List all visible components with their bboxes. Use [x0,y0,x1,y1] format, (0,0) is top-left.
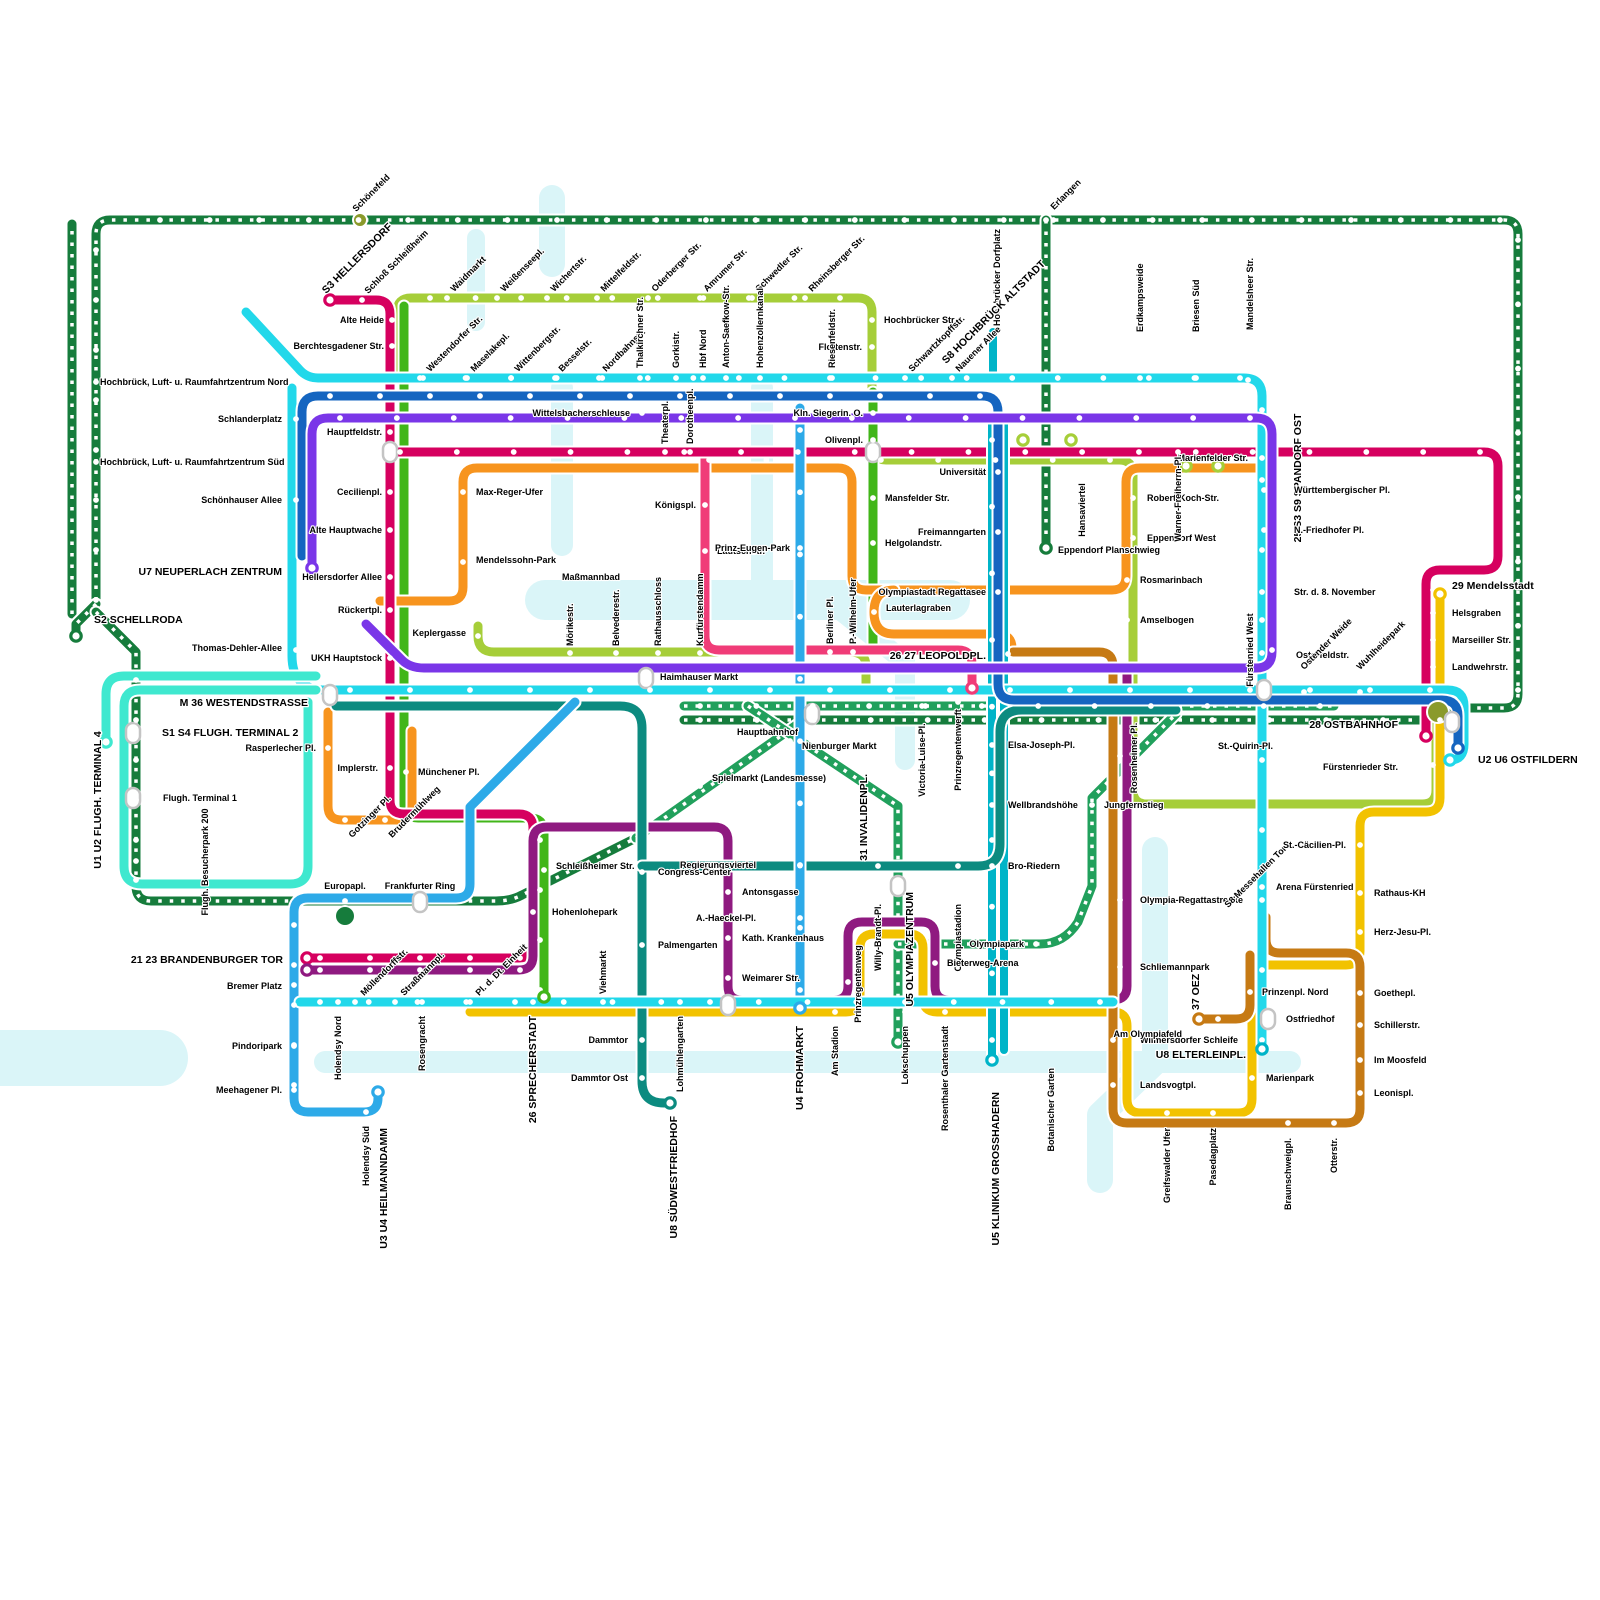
station-dot[interactable] [387,607,393,613]
station-dot[interactable] [845,979,851,985]
station-dot[interactable] [767,687,773,693]
station-dot[interactable] [1259,650,1265,656]
station-dot[interactable] [133,837,139,843]
station-dot[interactable] [1210,1110,1216,1116]
station-dot[interactable] [797,800,803,806]
station-dot[interactable] [797,614,803,620]
station-dot[interactable] [1515,559,1521,565]
station-dot[interactable] [850,649,856,655]
station-dot[interactable] [639,410,645,416]
station-dot[interactable] [1367,687,1373,693]
station-dot[interactable] [477,393,483,399]
station-dot[interactable] [681,449,687,455]
station-dot[interactable] [706,457,712,463]
station-dot[interactable] [417,898,423,904]
station-dot[interactable] [995,469,1001,475]
station-dot[interactable] [306,217,312,223]
station-dot[interactable] [1022,449,1028,455]
station-dot[interactable] [1515,301,1521,307]
station-dot[interactable] [610,999,616,1005]
station-dot[interactable] [508,375,514,381]
station-dot[interactable] [93,297,99,303]
station-dot[interactable] [207,217,213,223]
station-dot[interactable] [1009,375,1015,381]
station-dot[interactable] [1357,1057,1363,1063]
station-dot[interactable] [394,415,400,421]
terminal-station[interactable] [987,1055,997,1065]
station-dot[interactable] [942,1009,948,1015]
station-dot[interactable] [1204,703,1210,709]
station-dot[interactable] [989,704,995,710]
terminal-station[interactable] [373,1087,383,1097]
station-dot[interactable] [932,960,938,966]
station-dot[interactable] [382,817,388,823]
terminal-station[interactable] [795,1003,805,1013]
station-dot[interactable] [387,655,393,661]
station-dot[interactable] [738,449,744,455]
station-dot[interactable] [1259,617,1265,623]
station-dot[interactable] [877,393,883,399]
station-dot[interactable] [662,449,668,455]
station-dot[interactable] [702,502,708,508]
station-dot[interactable] [1261,487,1267,493]
station-dot[interactable] [1215,1016,1221,1022]
station-dot[interactable] [870,495,876,501]
station-dot[interactable] [133,757,139,763]
station-dot[interactable] [1033,941,1039,947]
terminal-station[interactable] [967,683,977,693]
station-dot[interactable] [1269,647,1275,653]
station-dot[interactable] [454,449,460,455]
station-dot[interactable] [639,869,645,875]
station-dot[interactable] [352,999,358,1005]
station-dot[interactable] [918,375,924,381]
terminal-station[interactable] [302,953,312,963]
station-dot[interactable] [1430,610,1436,616]
station-dot[interactable] [1245,377,1251,383]
station-dot[interactable] [1079,449,1085,455]
station-dot[interactable] [1124,577,1130,583]
station-dot[interactable] [754,717,760,723]
station-dot[interactable] [1357,890,1363,896]
station-dot[interactable] [1110,1082,1116,1088]
station-dot[interactable] [291,1082,297,1088]
station-dot[interactable] [527,393,533,399]
station-dot[interactable] [93,347,99,353]
station-dot[interactable] [697,783,703,789]
interchange-station[interactable] [383,442,397,462]
station-dot[interactable] [505,217,511,223]
station-dot[interactable] [1259,897,1265,903]
station-dot[interactable] [1124,617,1130,623]
station-dot[interactable] [291,1043,297,1049]
station-dot[interactable] [1001,217,1007,223]
station-dot[interactable] [645,295,651,301]
station-dot[interactable] [1398,217,1404,223]
station-dot[interactable] [725,935,731,941]
station-dot[interactable] [989,837,995,843]
station-dot[interactable] [530,999,536,1005]
station-dot[interactable] [1447,217,1453,223]
station-dot[interactable] [787,738,793,744]
station-dot[interactable] [1209,717,1215,723]
station-dot[interactable] [1193,375,1199,381]
interchange-station[interactable] [891,876,905,896]
station-dot[interactable] [366,999,372,1005]
station-dot[interactable] [1515,623,1521,629]
station-dot[interactable] [1050,217,1056,223]
station-dot[interactable] [363,1109,369,1115]
station-dot[interactable] [157,217,163,223]
terminal-station[interactable] [1257,1044,1267,1054]
station-dot[interactable] [387,489,393,495]
u-turquoise-loop[interactable] [124,690,316,884]
station-dot[interactable] [467,955,473,961]
station-dot[interactable] [444,295,450,301]
terminal-station[interactable] [302,965,312,975]
terminal-station[interactable] [1041,543,1051,553]
station-dot[interactable] [870,540,876,546]
station-dot[interactable] [829,375,835,381]
station-dot[interactable] [1096,717,1102,723]
station-dot[interactable] [723,375,729,381]
station-dot[interactable] [700,375,706,381]
station-dot[interactable] [1249,1075,1255,1081]
station-dot[interactable] [1079,465,1085,471]
station-dot[interactable] [325,745,331,751]
station-dot[interactable] [1130,495,1136,501]
station-dot[interactable] [451,415,457,421]
station-dot[interactable] [291,962,297,968]
station-dot[interactable] [609,295,615,301]
station-dot[interactable] [1515,430,1521,436]
station-dot[interactable] [1299,217,1305,223]
station-dot[interactable] [1259,407,1265,413]
station-dot[interactable] [627,393,633,399]
station-dot[interactable] [1127,687,1133,693]
station-dot[interactable] [647,687,653,693]
station-dot[interactable] [677,393,683,399]
station-dot[interactable] [1363,449,1369,455]
station-dot[interactable] [1130,535,1136,541]
station-dot[interactable] [1055,375,1061,381]
station-dot[interactable] [1039,717,1045,723]
station-dot[interactable] [93,247,99,253]
station-dot[interactable] [133,877,139,883]
station-dot[interactable] [875,863,881,869]
station-dot[interactable] [687,449,693,455]
station-dot[interactable] [1089,802,1095,808]
station-dot[interactable] [347,687,353,693]
station-dot[interactable] [604,217,610,223]
station-dot[interactable] [763,457,769,463]
station-dot[interactable] [832,1009,838,1015]
station-dot[interactable] [1259,455,1265,461]
station-dot[interactable] [567,650,573,656]
station-dot[interactable] [1259,884,1265,890]
station-dot[interactable] [467,967,473,973]
station-dot[interactable] [293,647,299,653]
station-dot[interactable] [342,817,348,823]
station-dot[interactable] [1357,929,1363,935]
station-dot[interactable] [1515,366,1521,372]
station-dot[interactable] [624,449,630,455]
station-dot[interactable] [677,999,683,1005]
station-dot[interactable] [989,770,995,776]
station-dot[interactable] [1259,827,1265,833]
station-dot[interactable] [389,317,395,323]
station-dot[interactable] [873,375,879,381]
station-dot[interactable] [906,415,912,421]
station-dot[interactable] [703,217,709,223]
station-dot[interactable] [1430,762,1436,768]
station-dot[interactable] [727,393,733,399]
station-dot[interactable] [955,863,961,869]
station-dot[interactable] [1247,989,1253,995]
station-dot[interactable] [655,650,661,656]
station-dot[interactable] [600,999,606,1005]
station-dot[interactable] [473,295,479,301]
station-dot[interactable] [802,295,808,301]
station-dot[interactable] [1259,547,1265,553]
station-dot[interactable] [464,375,470,381]
station-dot[interactable] [1249,217,1255,223]
station-dot[interactable] [795,449,801,455]
station-dot[interactable] [1317,703,1323,709]
station-dot[interactable] [1187,687,1193,693]
station-dot[interactable] [293,416,299,422]
station-dot[interactable] [802,217,808,223]
station-dot[interactable] [869,317,875,323]
station-dot[interactable] [797,862,803,868]
station-dot[interactable] [909,449,915,455]
station-dot[interactable] [291,1002,297,1008]
station-dot[interactable] [460,559,466,565]
station-dot[interactable] [291,922,297,928]
station-dot[interactable] [467,687,473,693]
station-dot[interactable] [317,999,323,1005]
station-dot[interactable] [852,449,858,455]
station-dot[interactable] [725,975,731,981]
station-dot[interactable] [1136,449,1142,455]
station-dot[interactable] [552,375,558,381]
station-dot[interactable] [356,217,362,223]
station-dot[interactable] [93,459,99,465]
station-dot[interactable] [821,457,827,463]
station-dot[interactable] [1247,687,1253,693]
station-dot[interactable] [1259,477,1265,483]
station-dot[interactable] [367,955,373,961]
station-dot[interactable] [1515,687,1521,693]
station-dot[interactable] [1000,999,1006,1005]
station-dot[interactable] [1048,999,1054,1005]
station-dot[interactable] [1301,689,1307,695]
station-dot[interactable] [870,437,876,443]
terminal-station[interactable] [1194,1014,1204,1024]
station-dot[interactable] [639,942,645,948]
station-dot[interactable] [1237,375,1243,381]
station-dot[interactable] [133,677,139,683]
station-dot[interactable] [1107,457,1113,463]
station-dot[interactable] [989,504,995,510]
station-dot[interactable] [690,375,696,381]
station-dot[interactable] [475,633,481,639]
station-dot[interactable] [420,375,426,381]
station-dot[interactable] [1259,757,1265,763]
station-dot[interactable] [1515,494,1521,500]
station-dot[interactable] [810,703,816,709]
station-dot[interactable] [1043,217,1049,223]
station-dot[interactable] [797,427,803,433]
station-dot[interactable] [1092,703,1098,709]
station-dot[interactable] [1348,217,1354,223]
terminal-station[interactable] [1445,755,1455,765]
station-dot[interactable] [291,1087,297,1093]
station-dot[interactable] [964,375,970,381]
station-dot[interactable] [1050,457,1056,463]
station-dot[interactable] [869,344,875,350]
station-dot[interactable] [989,570,995,576]
station-dot[interactable] [417,955,423,961]
station-dot[interactable] [508,415,514,421]
station-dot[interactable] [902,1009,908,1015]
station-dot[interactable] [1437,717,1443,723]
station-dot[interactable] [827,649,833,655]
station-dot[interactable] [989,637,995,643]
station-dot[interactable] [982,717,988,723]
station-dot[interactable] [577,393,583,399]
station-dot[interactable] [554,217,560,223]
station-dot[interactable] [93,379,99,385]
terminal-station[interactable] [1435,589,1445,599]
interchange-station[interactable] [639,668,653,688]
station-dot[interactable] [902,375,908,381]
station-dot[interactable] [989,437,995,443]
station-dot[interactable] [397,449,403,455]
station-dot[interactable] [935,457,941,463]
station-dot[interactable] [655,295,661,301]
station-dot[interactable] [1259,967,1265,973]
station-dot[interactable] [405,217,411,223]
station-dot[interactable] [1133,415,1139,421]
station-dot[interactable] [564,295,570,301]
station-dot[interactable] [527,687,533,693]
station-dot[interactable] [1190,415,1196,421]
station-dot[interactable] [1430,664,1436,670]
station-dot[interactable] [1202,743,1208,749]
station-dot[interactable] [1307,687,1313,693]
station-dot[interactable] [951,999,957,1005]
station-dot[interactable] [1117,753,1123,759]
station-dot[interactable] [753,217,759,223]
station-dot[interactable] [534,457,540,463]
station-dot[interactable] [1427,687,1433,693]
station-dot[interactable] [427,295,433,301]
station-dot[interactable] [989,742,995,748]
station-dot[interactable] [1097,999,1103,1005]
station-dot[interactable] [753,703,759,709]
station-dot[interactable] [870,410,876,416]
station-dot[interactable] [1067,687,1073,693]
station-dot[interactable] [327,393,333,399]
station-dot[interactable] [697,295,703,301]
station-dot[interactable] [702,548,708,554]
station-dot[interactable] [902,217,908,223]
station-dot[interactable] [697,650,703,656]
station-dot[interactable] [1357,1022,1363,1028]
station-dot[interactable] [1285,1120,1291,1126]
station-dot[interactable] [797,676,803,682]
station-dot[interactable] [387,527,393,533]
station-dot[interactable] [995,589,1001,595]
station-dot[interactable] [477,457,483,463]
station-dot[interactable] [467,999,473,1005]
station-dot[interactable] [93,597,99,603]
station-dot[interactable] [342,898,348,904]
terminal-station[interactable] [1018,435,1028,445]
station-dot[interactable] [1307,449,1313,455]
station-dot[interactable] [1199,217,1205,223]
station-dot[interactable] [1076,415,1082,421]
station-dot[interactable] [1150,217,1156,223]
interchange-station[interactable] [721,995,735,1015]
station-dot[interactable] [868,717,874,723]
station-dot[interactable] [955,699,961,705]
station-dot[interactable] [827,393,833,399]
station-dot[interactable] [587,687,593,693]
station-dot[interactable] [927,393,933,399]
station-dot[interactable] [757,375,763,381]
station-dot[interactable] [639,574,645,580]
station-dot[interactable] [792,295,798,301]
station-dot[interactable] [866,703,872,709]
station-dot[interactable] [797,489,803,495]
station-dot[interactable] [735,415,741,421]
interchange-station[interactable] [323,685,337,705]
station-dot[interactable] [596,375,602,381]
station-dot[interactable] [966,449,972,455]
station-dot[interactable] [1259,1037,1265,1043]
station-dot[interactable] [1164,1110,1170,1116]
station-dot[interactable] [797,915,803,921]
station-dot[interactable] [392,999,398,1005]
station-dot[interactable] [645,375,651,381]
station-dot[interactable] [925,717,931,723]
station-dot[interactable] [530,909,536,915]
station-dot[interactable] [989,1037,995,1043]
station-dot[interactable] [707,999,713,1005]
s-invaliden[interactable] [748,706,898,1042]
station-dot[interactable] [637,375,643,381]
station-dot[interactable] [797,925,803,931]
station-dot[interactable] [977,393,983,399]
station-dot[interactable] [317,967,323,973]
station-dot[interactable] [291,982,297,988]
station-dot[interactable] [561,999,567,1005]
station-dot[interactable] [460,489,466,495]
station-dot[interactable] [1420,449,1426,455]
station-dot[interactable] [949,375,955,381]
station-dot[interactable] [678,415,684,421]
station-dot[interactable] [871,609,877,615]
station-dot[interactable] [517,967,523,973]
station-dot[interactable] [697,717,703,723]
station-dot[interactable] [256,217,262,223]
station-dot[interactable] [1100,217,1106,223]
station-dot[interactable] [1430,637,1436,643]
station-dot[interactable] [1259,589,1265,595]
terminal-station[interactable] [1453,743,1463,753]
